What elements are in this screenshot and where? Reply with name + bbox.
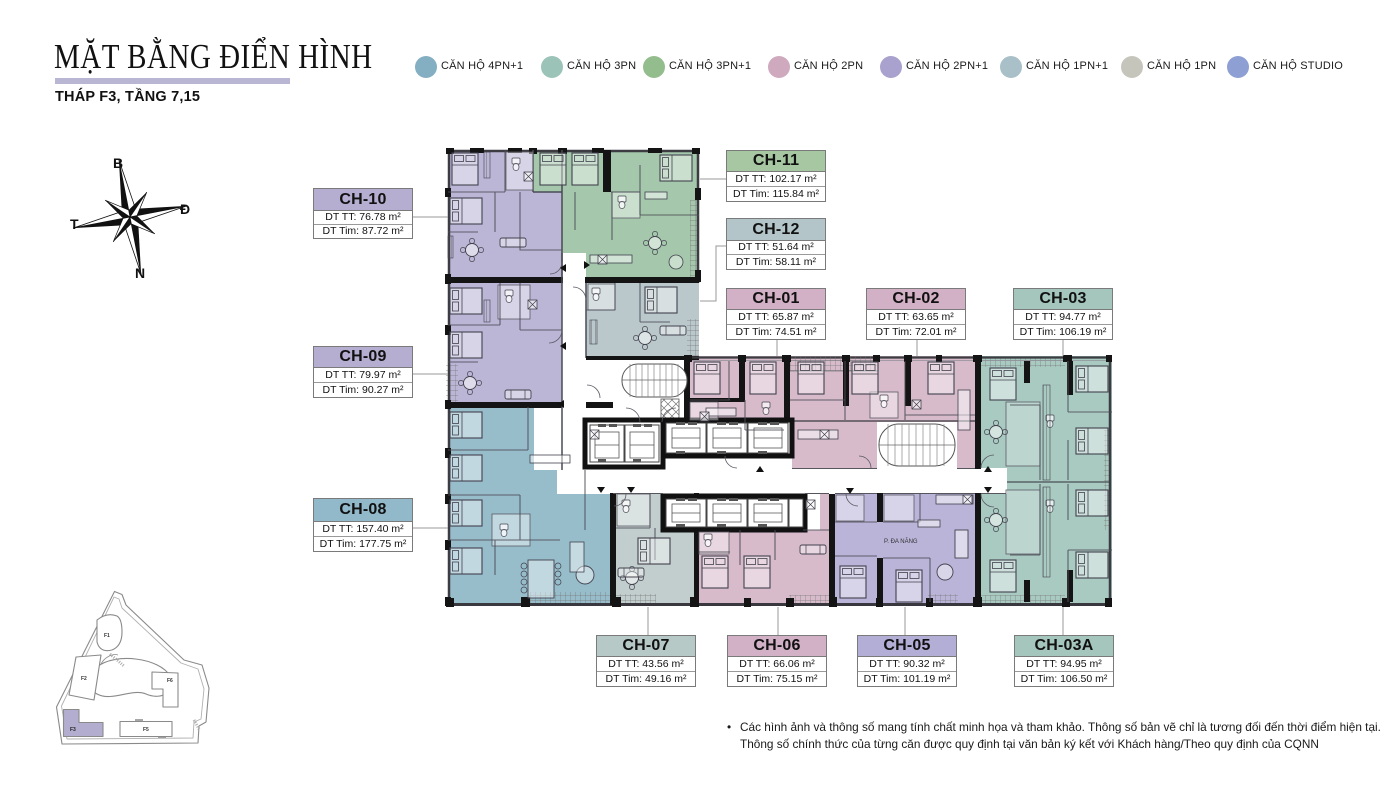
svg-text:B: B: [113, 155, 123, 171]
svg-text:F6: F6: [167, 678, 173, 684]
svg-text:Đ: Đ: [180, 201, 190, 217]
svg-text:P. ĐA NĂNG: P. ĐA NĂNG: [884, 538, 918, 545]
svg-text:F1: F1: [104, 633, 110, 639]
svg-text:F3: F3: [70, 727, 76, 733]
svg-text:F2: F2: [81, 676, 87, 682]
svg-text:N: N: [135, 265, 145, 281]
svg-text:T: T: [70, 216, 79, 232]
svg-text:F5: F5: [143, 727, 149, 733]
